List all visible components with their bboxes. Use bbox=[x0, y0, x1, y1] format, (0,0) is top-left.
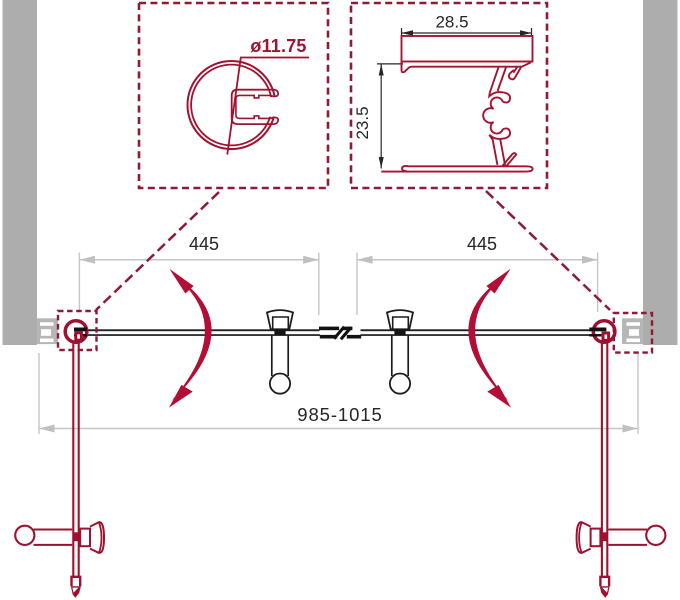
svg-text:23.5: 23.5 bbox=[353, 106, 372, 139]
svg-text:28.5: 28.5 bbox=[435, 13, 468, 32]
svg-text:ø11.75: ø11.75 bbox=[250, 36, 306, 56]
svg-text:445: 445 bbox=[189, 234, 219, 254]
svg-text:985-1015: 985-1015 bbox=[297, 404, 382, 425]
svg-text:445: 445 bbox=[467, 234, 497, 254]
